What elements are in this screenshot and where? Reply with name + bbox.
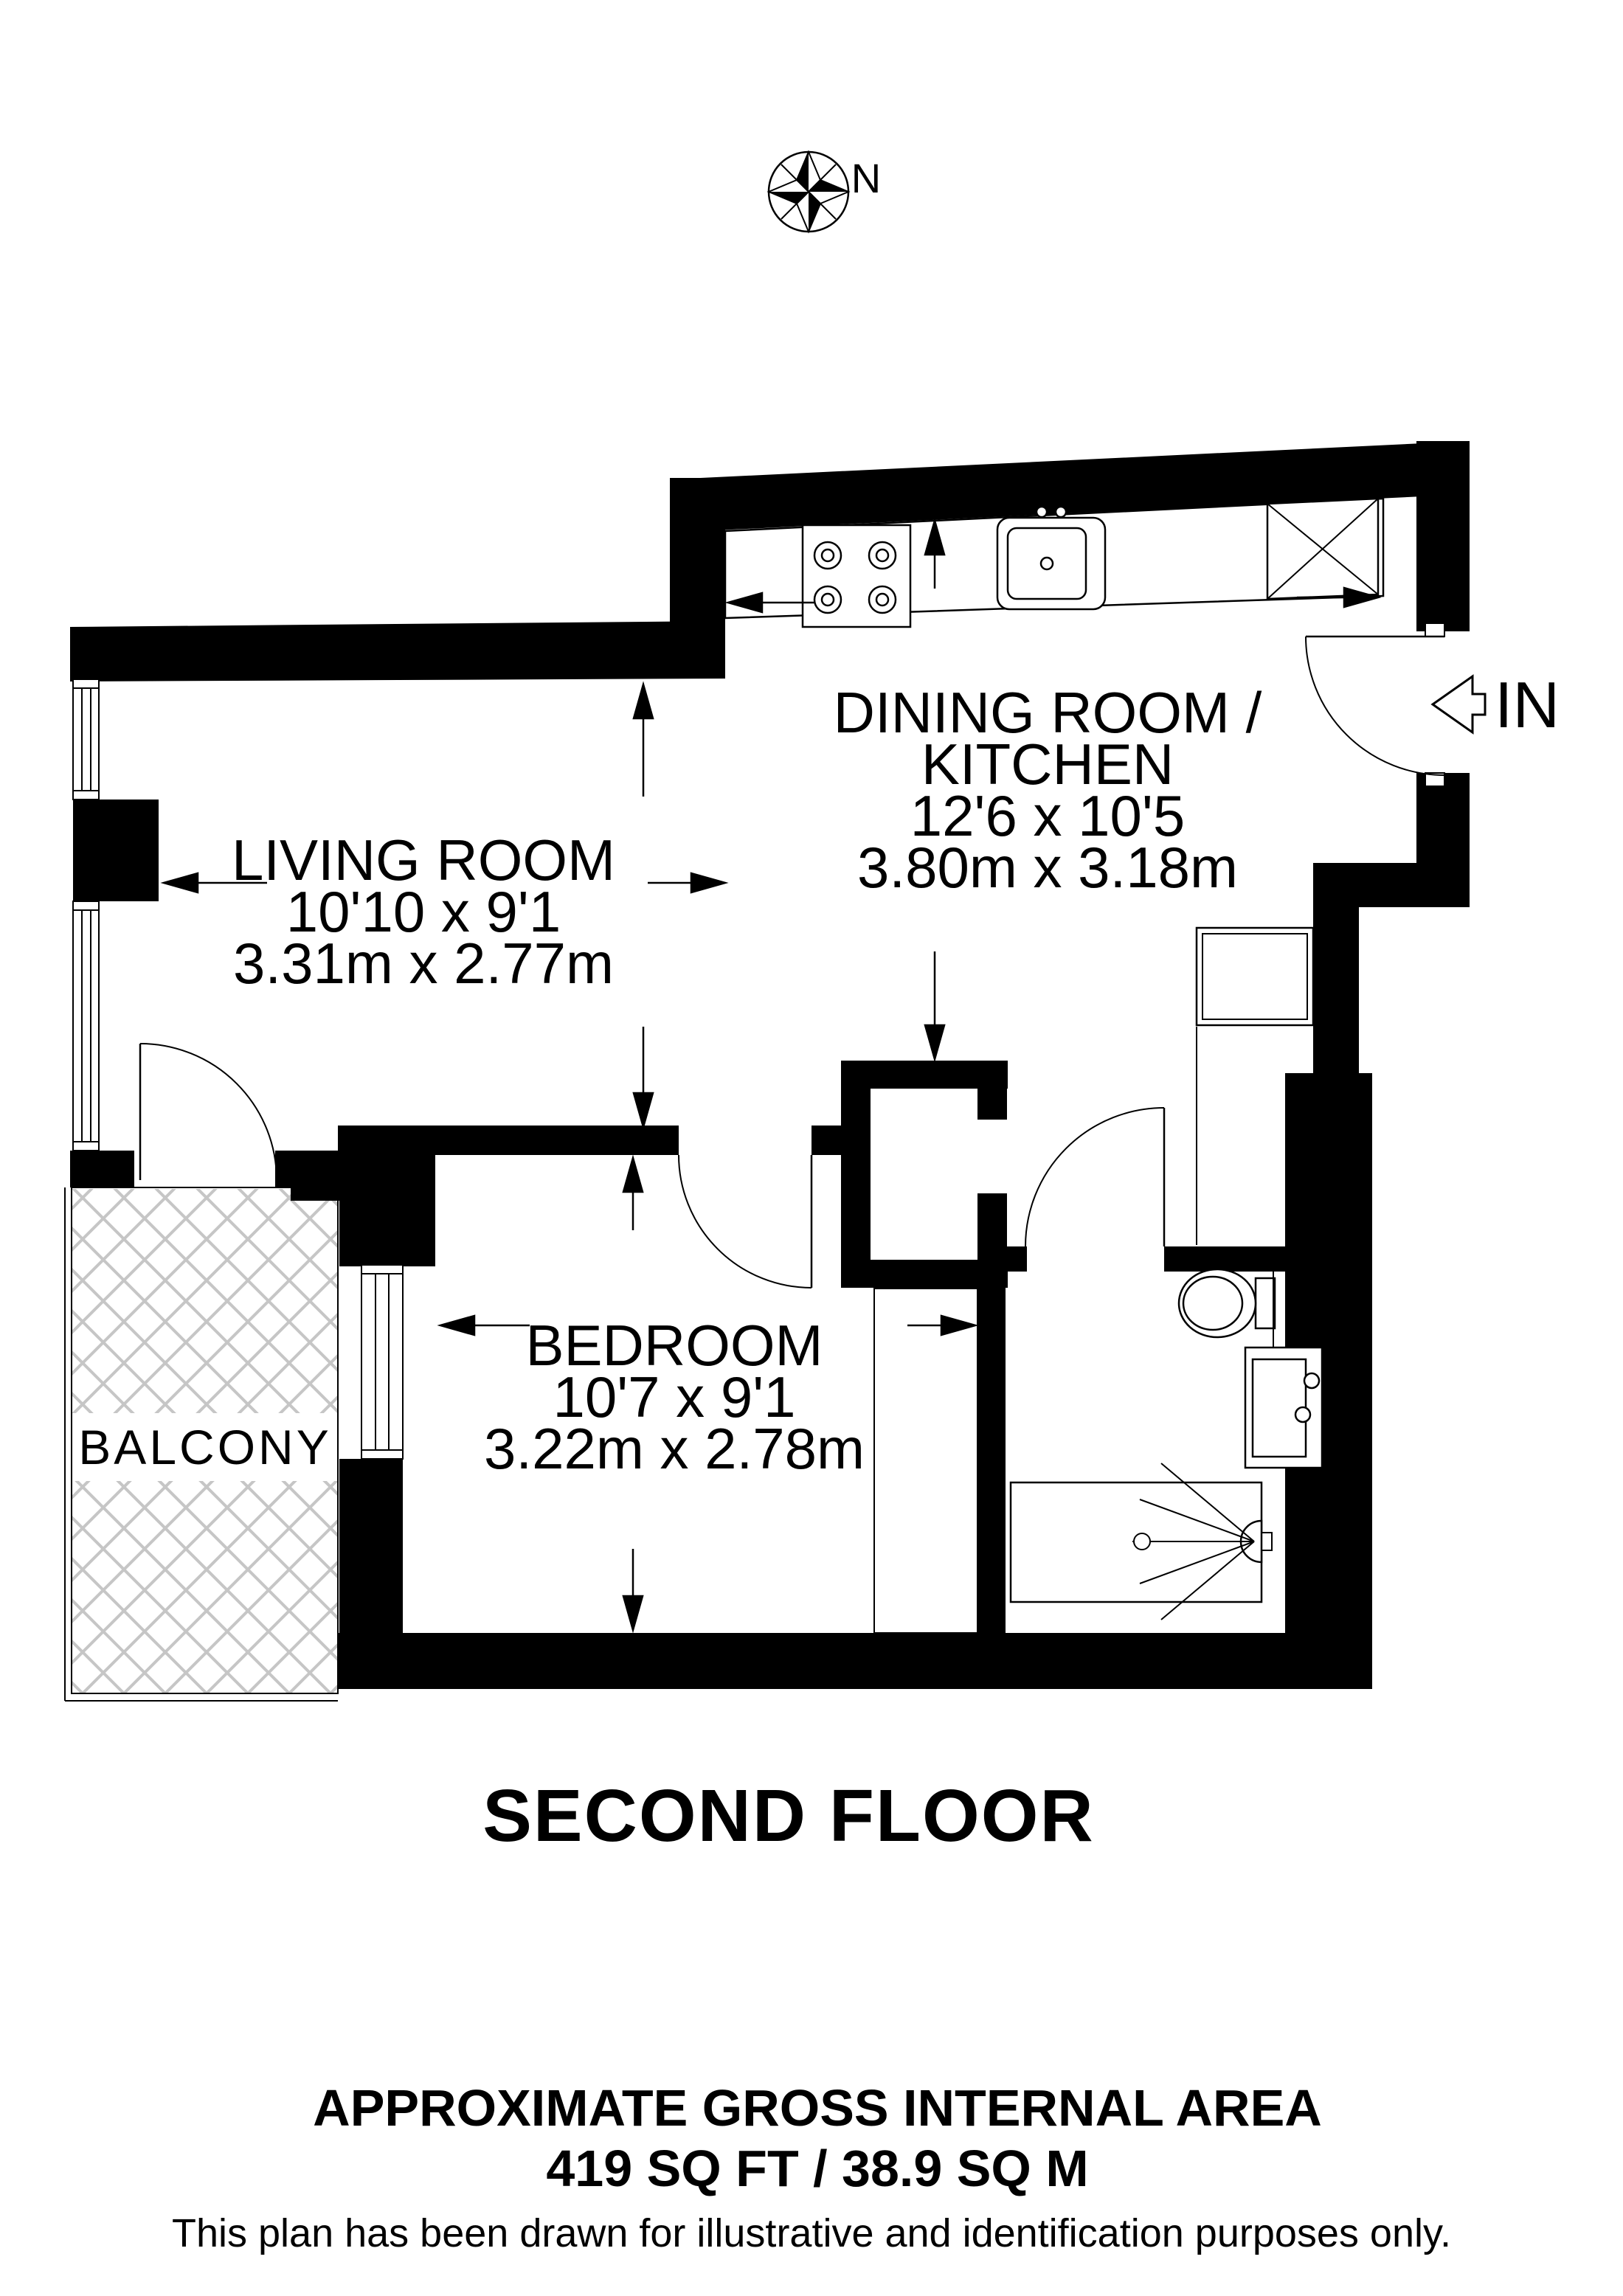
wall-right-jog [1313,863,1470,907]
wall-bedroom-left-upper [339,1185,435,1266]
wall-left-pillar [73,800,159,901]
hall-cupboard [1197,928,1313,1025]
bedroom-wardrobe [874,1289,977,1633]
appliance-icon [1267,499,1378,599]
living-window-upper [73,679,99,800]
wall-closet-left [841,1061,871,1288]
balcony-name: BALCONY [78,1423,331,1471]
floorplan-drawing [0,0,1623,2296]
wall-bedroom-left-lower [339,1459,403,1634]
bedroom-door [679,1155,811,1288]
entrance-door [1306,623,1444,786]
toilet-icon [1179,1269,1275,1337]
wall-right-above-door [1416,441,1470,631]
wall-right-mid [1313,907,1359,1077]
disclaimer: This plan has been drawn for illustrativ… [172,2213,1451,2253]
bathroom-sink-icon [1245,1348,1322,1468]
area-value: 419 SQ FT / 38.9 SQ M [546,2143,1088,2194]
wall-bathroom-top [1164,1246,1285,1272]
wall-closet-right-upper [977,1061,1007,1120]
kitchen-sink-icon [997,507,1105,609]
balcony-door [140,1044,277,1180]
wall-bottom [338,1633,1372,1689]
entrance-in-label: IN [1495,673,1560,738]
bedroom-balcony-window [361,1265,403,1459]
bedroom-metric-dims: 3.22m x 2.78m [484,1420,865,1477]
entrance-arrow-icon [1433,676,1485,732]
compass-rose-icon [769,152,848,232]
hob-icon [803,525,910,627]
wall-bedroom-top [338,1126,679,1155]
bathroom-fixtures [1011,1248,1322,1620]
living-window-lower [73,901,99,1151]
wall-bedroom-right [977,1246,1006,1633]
floorplan-page: N IN LIVING ROOM 10'10 x 9'1 3.31m x 2.7… [0,0,1623,2296]
wall-balcony-top-left [70,1151,134,1187]
floor-title: SECOND FLOOR [482,1779,1095,1853]
wall-living-top [70,621,725,681]
area-title: APPROXIMATE GROSS INTERNAL AREA [313,2082,1322,2134]
dining-room-metric-dims: 3.80m x 3.18m [857,839,1238,896]
living-room-metric-dims: 3.31m x 2.77m [233,934,614,992]
shower-icon [1011,1463,1272,1620]
wall-bathroom-door-jamb [1005,1246,1027,1272]
bathroom-door [1025,1108,1164,1246]
compass-north-label: N [851,158,881,199]
wall-bedroom-door-jamb [811,1126,842,1155]
